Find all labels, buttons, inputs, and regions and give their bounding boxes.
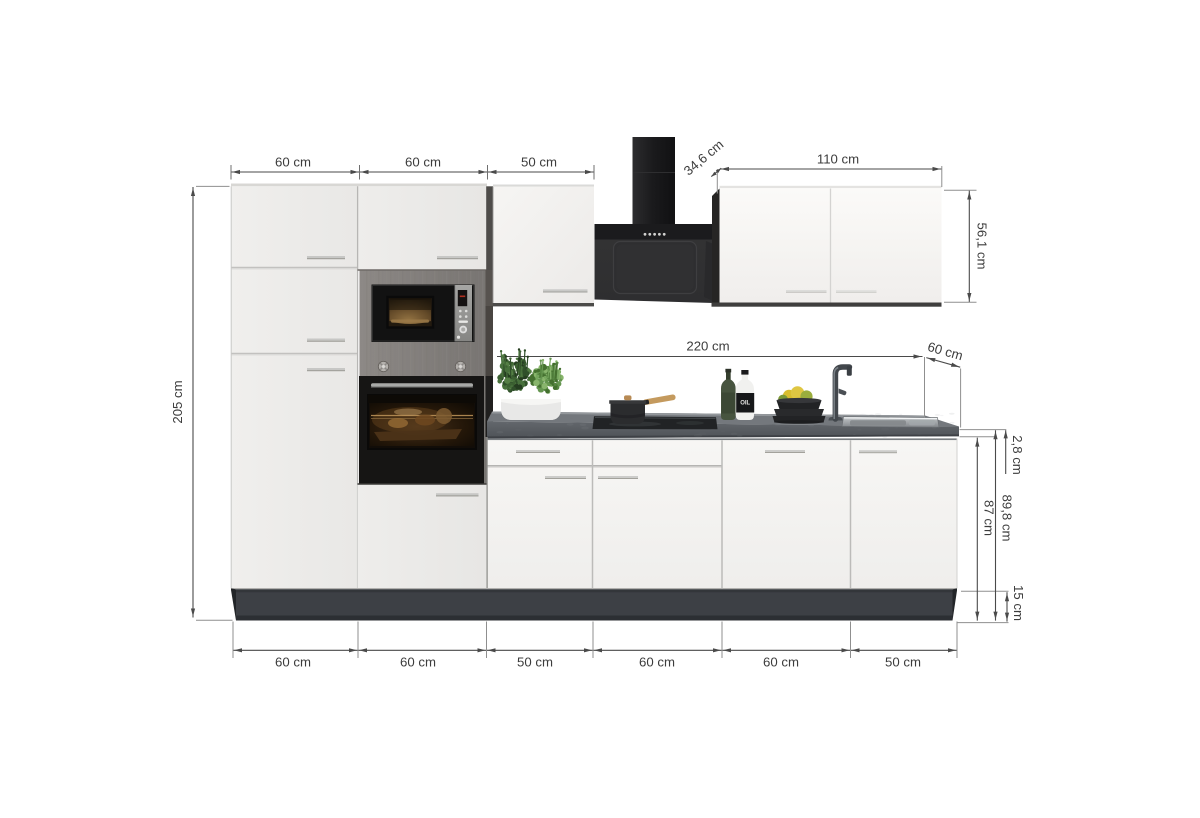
svg-text:50 cm: 50 cm: [885, 655, 921, 670]
svg-text:56,1 cm: 56,1 cm: [975, 223, 990, 270]
svg-text:50 cm: 50 cm: [517, 655, 553, 670]
svg-text:50 cm: 50 cm: [521, 155, 557, 170]
svg-text:15 cm: 15 cm: [1011, 585, 1026, 621]
svg-text:60 cm: 60 cm: [275, 155, 311, 170]
svg-text:60 cm: 60 cm: [400, 655, 436, 670]
svg-text:87 cm: 87 cm: [982, 500, 997, 536]
svg-text:60 cm: 60 cm: [639, 655, 675, 670]
svg-text:205 cm: 205 cm: [170, 380, 185, 423]
svg-text:60 cm: 60 cm: [275, 655, 311, 670]
svg-text:110 cm: 110 cm: [817, 152, 859, 167]
svg-text:60 cm: 60 cm: [405, 155, 441, 170]
svg-text:220 cm: 220 cm: [686, 339, 729, 354]
svg-text:89,8 cm: 89,8 cm: [1000, 495, 1015, 542]
svg-text:60 cm: 60 cm: [763, 655, 799, 670]
svg-text:2,8 cm: 2,8 cm: [1010, 435, 1025, 475]
svg-text:OIL: OIL: [740, 400, 750, 406]
